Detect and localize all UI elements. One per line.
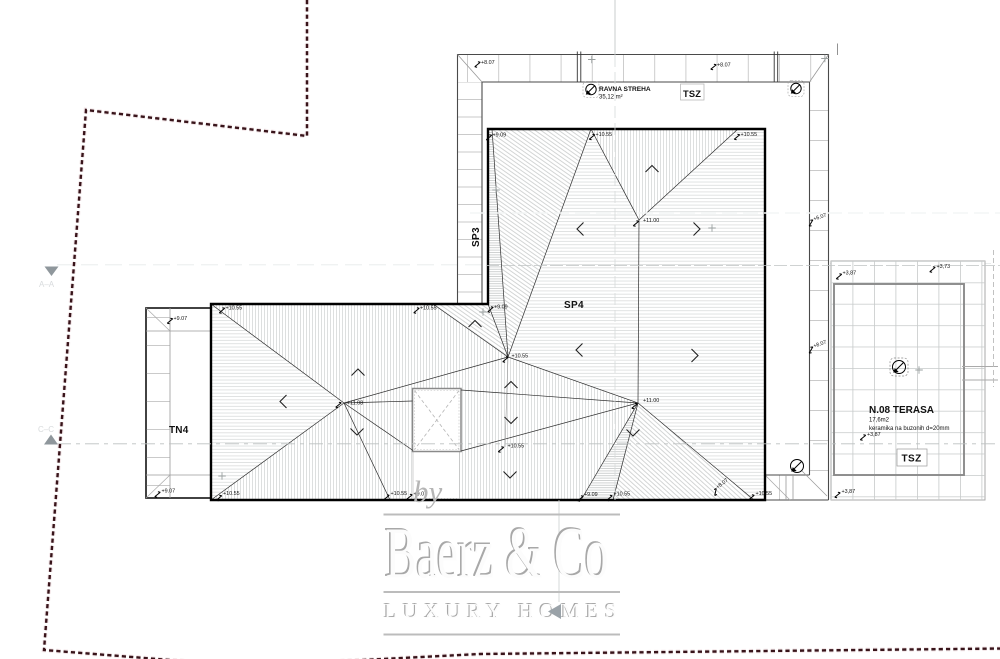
- svg-text:TSZ: TSZ: [902, 454, 922, 465]
- svg-text:35,12 m²: 35,12 m²: [599, 95, 623, 101]
- svg-text:RAVNA STREHA: RAVNA STREHA: [599, 86, 651, 93]
- svg-text:LUXURY HOMES: LUXURY HOMES: [384, 599, 623, 623]
- svg-text:+10.55: +10.55: [420, 306, 437, 312]
- svg-text:+10.55: +10.55: [756, 491, 773, 497]
- svg-text:+3,87: +3,87: [867, 432, 881, 438]
- svg-text:C–C: C–C: [38, 425, 54, 434]
- svg-text:+11.00: +11.00: [643, 218, 659, 224]
- svg-text:keramika na buzonih d=20mm: keramika na buzonih d=20mm: [869, 426, 950, 432]
- svg-text:+11.00: +11.00: [643, 398, 659, 404]
- svg-text:+10.55: +10.55: [508, 444, 525, 450]
- svg-text:+10.55: +10.55: [391, 491, 408, 497]
- svg-text:+11.08: +11.08: [347, 401, 363, 407]
- svg-text:+9.09: +9.09: [493, 133, 507, 139]
- svg-text:+9.07: +9.07: [162, 489, 176, 495]
- svg-text:+3,87: +3,87: [843, 271, 857, 277]
- svg-text:+9.09: +9.09: [584, 492, 598, 498]
- svg-text:+9.07: +9.07: [174, 316, 188, 322]
- svg-text:+10.55: +10.55: [596, 132, 613, 138]
- svg-text:+10.55: +10.55: [512, 354, 529, 360]
- svg-text:+8.07: +8.07: [481, 60, 495, 66]
- svg-text:+10.55: +10.55: [741, 132, 758, 138]
- svg-text:17,6m2: 17,6m2: [869, 418, 890, 424]
- svg-text:+3,73: +3,73: [937, 264, 951, 270]
- svg-text:by: by: [413, 474, 443, 509]
- svg-text:SP4: SP4: [564, 300, 584, 311]
- svg-text:N.08 TERASA: N.08 TERASA: [869, 405, 934, 416]
- svg-text:+10.55: +10.55: [223, 491, 240, 497]
- svg-text:A–A: A–A: [39, 280, 55, 289]
- svg-text:+10.55: +10.55: [226, 306, 243, 312]
- svg-text:+10.55: +10.55: [614, 492, 631, 498]
- svg-text:+9.09: +9.09: [494, 305, 508, 311]
- svg-text:+3,87: +3,87: [842, 489, 856, 495]
- svg-text:Baerz & Co: Baerz & Co: [385, 513, 608, 594]
- svg-text:+8.07: +8.07: [717, 63, 731, 69]
- svg-text:TSZ: TSZ: [683, 89, 701, 99]
- svg-text:TN4: TN4: [169, 425, 189, 436]
- svg-text:SP3: SP3: [471, 227, 482, 247]
